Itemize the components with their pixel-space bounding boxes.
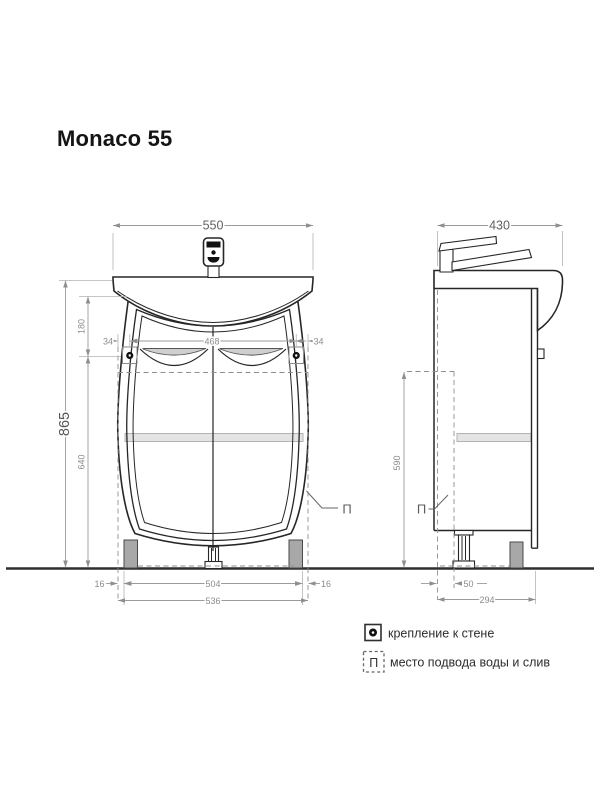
svg-text:865: 865 [57, 412, 73, 436]
svg-text:34: 34 [313, 337, 323, 347]
svg-text:34: 34 [103, 337, 113, 347]
front-pipe-callout: П [307, 491, 352, 517]
front-shelf [125, 434, 303, 442]
legend-wall-mount-label: крепление к стене [388, 627, 494, 641]
side-pipe-callout: П [417, 495, 448, 517]
side-view: 430 590 50 294 П [392, 219, 563, 606]
dim-side-supply-height: 590 [392, 372, 404, 568]
svg-text:294: 294 [479, 595, 494, 605]
legend-wall-mount-item: крепление к стене [365, 625, 494, 641]
svg-text:П: П [342, 502, 351, 517]
drawing-canvas: 550 865 180 640 [0, 0, 600, 800]
side-feet [453, 531, 523, 569]
faucet-front [204, 238, 224, 278]
svg-text:180: 180 [77, 319, 87, 334]
side-shelf [457, 434, 531, 442]
side-carcass [434, 289, 532, 531]
legend-supply-item: П место подвода воды и слив [364, 652, 551, 673]
svg-text:430: 430 [489, 219, 510, 233]
front-view: 550 865 180 640 [57, 219, 352, 607]
svg-text:640: 640 [77, 454, 87, 469]
svg-text:536: 536 [205, 596, 220, 606]
water-supply-icon: П [364, 652, 385, 673]
svg-text:590: 590 [392, 455, 402, 470]
legend-supply-label: место подвода воды и слив [390, 656, 550, 670]
svg-text:468: 468 [204, 337, 219, 347]
svg-text:16: 16 [94, 579, 104, 589]
technical-drawing-page: Monaco 55 [0, 0, 600, 800]
legend: крепление к стене П место подвода воды и… [364, 625, 551, 673]
svg-text:П: П [369, 656, 378, 670]
wall-mount-icon [365, 625, 381, 641]
faucet-side [439, 237, 532, 273]
svg-text:16: 16 [321, 579, 331, 589]
sink-side [434, 271, 563, 331]
dim-side-bottom: 50 294 [421, 571, 536, 605]
svg-text:550: 550 [203, 219, 224, 233]
svg-text:504: 504 [205, 579, 220, 589]
svg-text:П: П [417, 502, 426, 517]
svg-text:50: 50 [463, 579, 473, 589]
dim-front-bottom: 16 504 16 536 [94, 571, 331, 606]
